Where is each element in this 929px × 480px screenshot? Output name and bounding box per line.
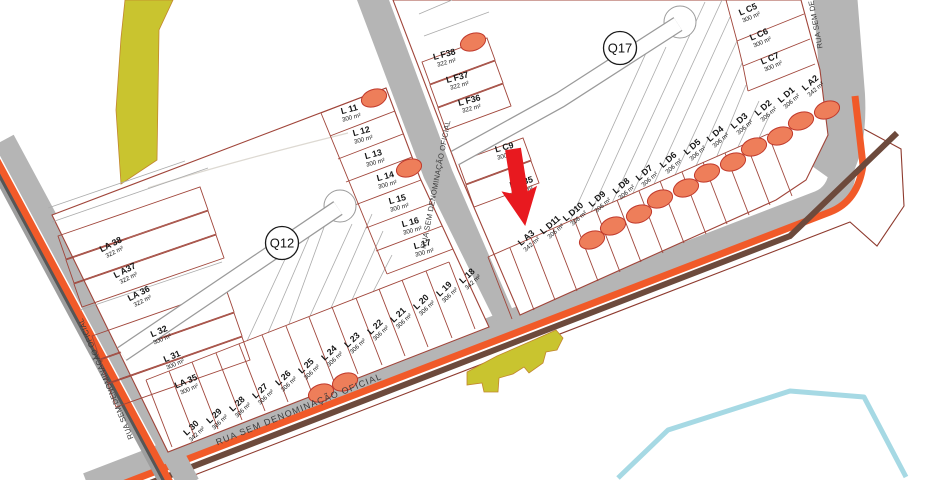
- quadra-badge-q17: Q17: [604, 32, 637, 65]
- quadra-badge-q12: Q12: [266, 227, 299, 260]
- subdivision-map: L 11300 m² L 12300 m² L 13300 m² L 14300…: [0, 0, 929, 480]
- right-street: [826, 0, 843, 176]
- map-container: L 11300 m² L 12300 m² L 13300 m² L 14300…: [0, 0, 929, 480]
- quadra-label: Q12: [270, 236, 295, 251]
- quadra-label: Q17: [608, 41, 633, 56]
